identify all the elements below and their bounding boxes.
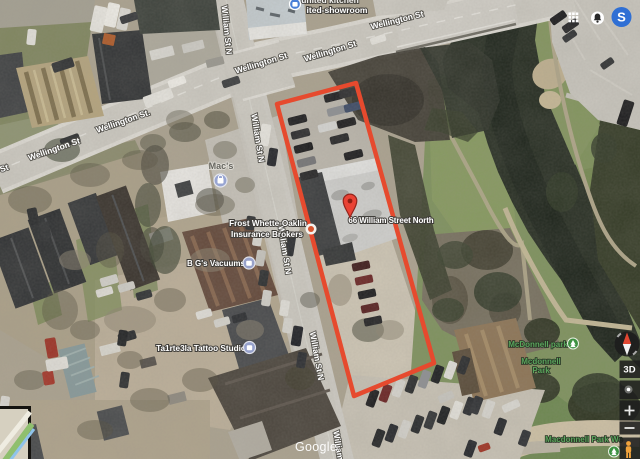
svg-text:Mcdonnell: Mcdonnell [521, 357, 561, 366]
svg-text:3D: 3D [623, 365, 635, 376]
svg-text:Mac's: Mac's [209, 161, 234, 171]
svg-text:Google: Google [295, 440, 337, 454]
svg-text:66 William Street North: 66 William Street North [348, 216, 433, 225]
svg-text:McDonnell park: McDonnell park [508, 340, 568, 349]
svg-text:S: S [617, 10, 626, 25]
svg-text:Insurance Brokers: Insurance Brokers [231, 230, 303, 239]
svg-text:united kitchen: united kitchen [301, 0, 359, 5]
svg-text:ited-showroom: ited-showroom [307, 5, 368, 15]
svg-text:Park: Park [532, 366, 550, 375]
svg-text:Macdonnell Park We: Macdonnell Park We [545, 435, 623, 444]
svg-text:B G's Vacuums: B G's Vacuums [187, 259, 245, 268]
svg-text:Frost Whette-Oaklin: Frost Whette-Oaklin [229, 219, 307, 228]
svg-text:Ta1rte3la Tattoo Studio: Ta1rte3la Tattoo Studio [156, 344, 246, 353]
